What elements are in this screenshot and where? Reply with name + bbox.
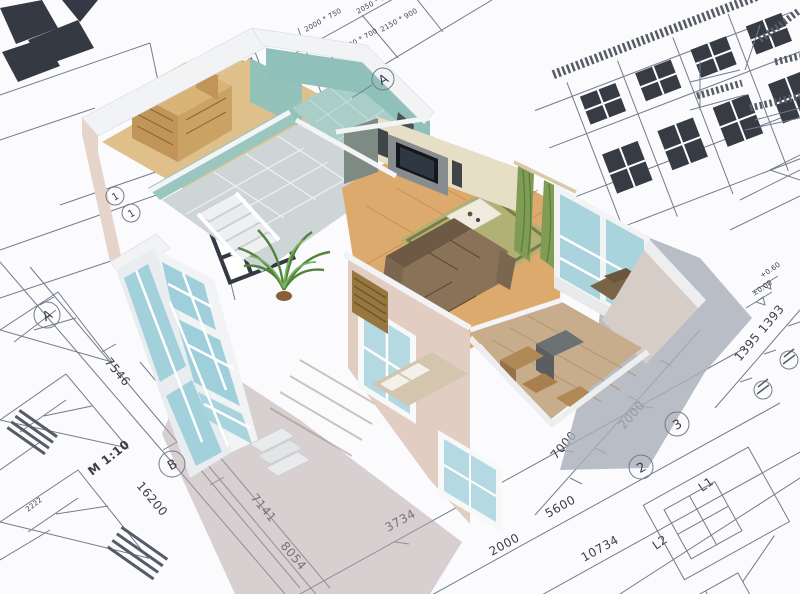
table-item [476, 218, 480, 222]
plant-pot [276, 291, 292, 301]
architectural-render-scene: M 1:10 2222 7546 16200 7141 8054 3734 20… [0, 0, 800, 594]
table-item [468, 212, 473, 217]
scene-canvas: M 1:10 2222 7546 16200 7141 8054 3734 20… [0, 0, 800, 594]
